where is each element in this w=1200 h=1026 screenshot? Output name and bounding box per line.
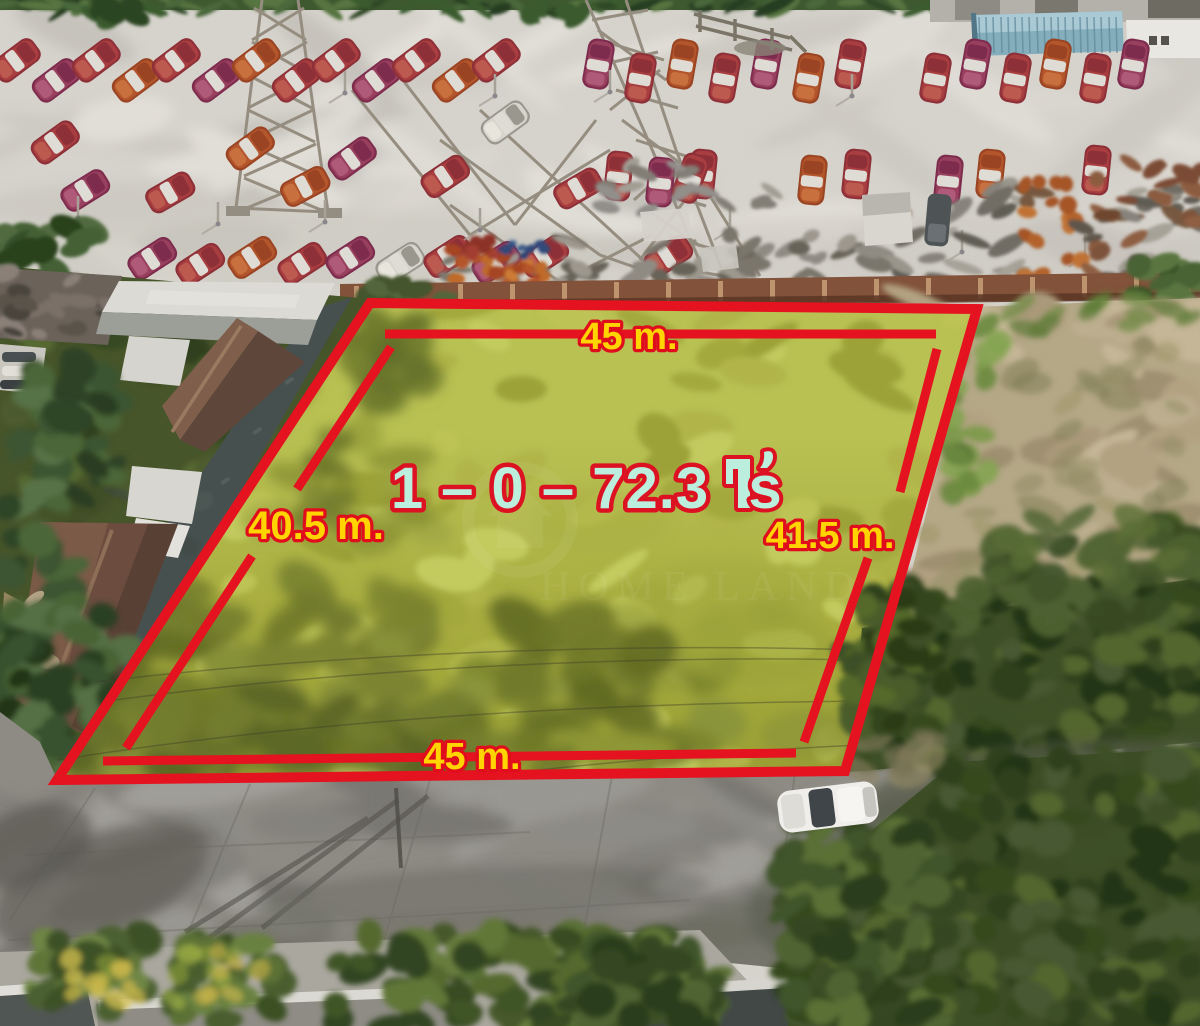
svg-text:41.5 m.: 41.5 m. — [766, 515, 895, 557]
svg-text:45 m.: 45 m. — [423, 736, 520, 778]
svg-text:s: s — [748, 454, 781, 521]
svg-text:1 – 0 – 72.3: 1 – 0 – 72.3 — [391, 456, 709, 521]
svg-text:HOME LAND: HOME LAND — [540, 564, 863, 610]
svg-text:45 m.: 45 m. — [580, 316, 677, 358]
svg-text:40.5 m.: 40.5 m. — [248, 504, 384, 548]
